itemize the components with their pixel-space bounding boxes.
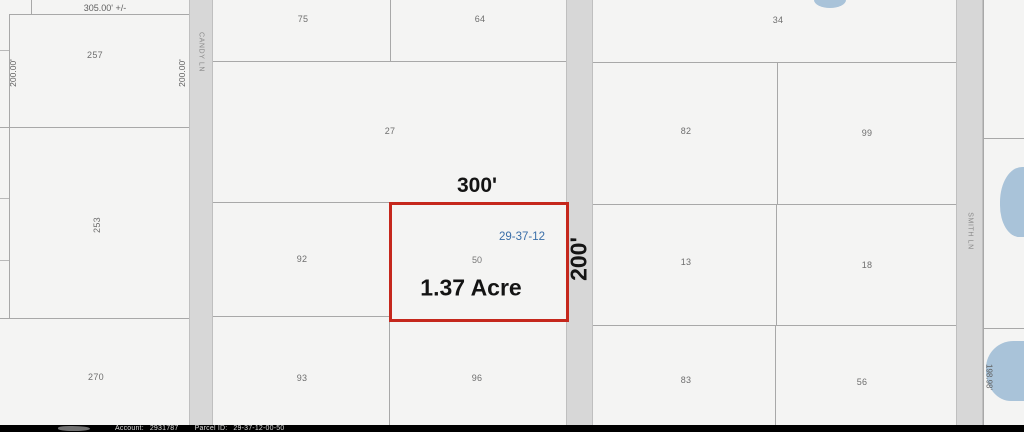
parcel-number-18: 18: [862, 260, 873, 270]
parcel-number-270: 270: [88, 372, 104, 382]
parcel-id-label: Parcel ID:: [195, 425, 228, 432]
boundary-line: [593, 62, 956, 63]
boundary-line: [776, 204, 777, 325]
footer-bar: Account:2931787 Parcel ID:29-37-12-00-50: [0, 425, 1024, 432]
pond-right-middle: [1000, 167, 1024, 237]
dimension-label-right: 200.00': [177, 59, 187, 87]
selected-parcel-height-label: 200': [566, 237, 593, 281]
footer-logo-icon: [58, 426, 90, 431]
road-middle: [566, 0, 593, 425]
parcel-number-99: 99: [862, 128, 873, 138]
parcel-number-34: 34: [773, 15, 784, 25]
boundary-tick: [0, 50, 9, 51]
road-label-candy-ln: CANDY LN: [198, 32, 205, 72]
pond-top: [814, 0, 846, 8]
parcel-number-93: 93: [297, 373, 308, 383]
dimension-label-left: 200.00': [8, 59, 18, 87]
boundary-line: [983, 328, 1024, 329]
dimension-label-bottom-right: 198.98': [985, 364, 994, 390]
dimension-label-top: 305.00' +/-: [84, 3, 127, 13]
boundary-line: [31, 0, 32, 14]
parcel-id-value: 29-37-12-00-50: [233, 425, 284, 432]
parcel-number-257: 257: [87, 50, 103, 60]
parcel-number-96: 96: [472, 373, 483, 383]
footer-parcel-info: Account:2931787 Parcel ID:29-37-12-00-50: [115, 425, 290, 432]
parcel-number-82: 82: [681, 126, 692, 136]
road-label-smith-ln: SMITH LN: [967, 212, 974, 249]
parcel-number-64: 64: [475, 14, 486, 24]
boundary-line: [983, 0, 984, 425]
boundary-line: [390, 0, 391, 61]
parcel-number-50: 50: [472, 255, 482, 265]
parcel-number-92: 92: [297, 254, 308, 264]
parcel-number-27: 27: [385, 126, 396, 136]
boundary-line: [213, 202, 390, 203]
parcel-number-56: 56: [857, 377, 868, 387]
boundary-line: [0, 127, 189, 128]
parcel-number-13: 13: [681, 257, 692, 267]
account-value: 2931787: [150, 425, 179, 432]
account-label: Account:: [115, 425, 144, 432]
boundary-line: [0, 318, 189, 319]
boundary-tick: [0, 198, 9, 199]
parcel-number-75: 75: [298, 14, 309, 24]
boundary-line: [9, 14, 189, 15]
parcel-number-83: 83: [681, 375, 692, 385]
boundary-tick: [0, 260, 9, 261]
boundary-line: [213, 61, 566, 62]
selected-parcel-area-label: 1.37 Acre: [420, 275, 521, 302]
parcel-map[interactable]: 305.00' +/- 200.00' 200.00' 198.98' CAND…: [0, 0, 1024, 432]
boundary-line: [983, 138, 1024, 139]
boundary-line: [777, 62, 778, 205]
boundary-line: [213, 316, 390, 317]
boundary-line: [593, 204, 956, 205]
selected-parcel-width-label: 300': [457, 174, 497, 198]
boundary-line: [775, 325, 776, 425]
parcel-number-253: 253: [92, 217, 102, 233]
selected-parcel-section-label: 29-37-12: [499, 231, 545, 243]
boundary-line: [389, 316, 390, 425]
